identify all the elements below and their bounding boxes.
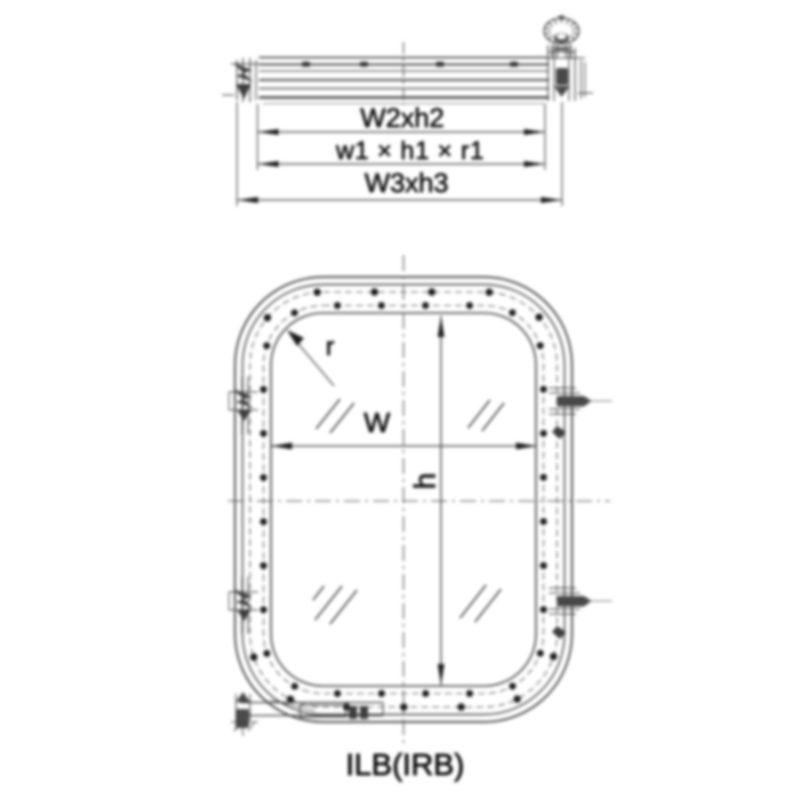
svg-text:W3xh3: W3xh3 bbox=[364, 168, 448, 198]
svg-text:w1 × h1 × r1: w1 × h1 × r1 bbox=[335, 137, 485, 165]
svg-text:W2xh2: W2xh2 bbox=[360, 103, 444, 133]
svg-text:r: r bbox=[326, 331, 335, 361]
svg-text:W: W bbox=[364, 407, 391, 438]
svg-text:h: h bbox=[409, 473, 442, 490]
svg-text:ILB(IRB): ILB(IRB) bbox=[346, 747, 465, 782]
